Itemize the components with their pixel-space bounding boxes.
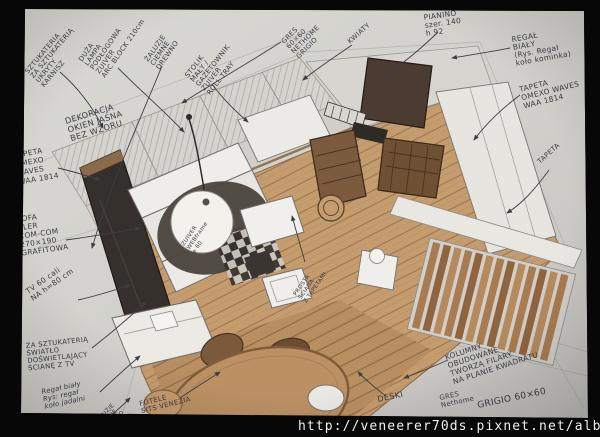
screenshot-root: SZTUKATERIAZA SZTUKATERIĄUKRYTYKARNISZ D… [0, 0, 600, 437]
watermark-url: http://veneerer70ds.pixnet.net/album [298, 419, 600, 434]
photo-vignette [0, 0, 600, 437]
framed-sketch-photo: SZTUKATERIAZA SZTUKATERIĄUKRYTYKARNISZ D… [0, 0, 600, 437]
